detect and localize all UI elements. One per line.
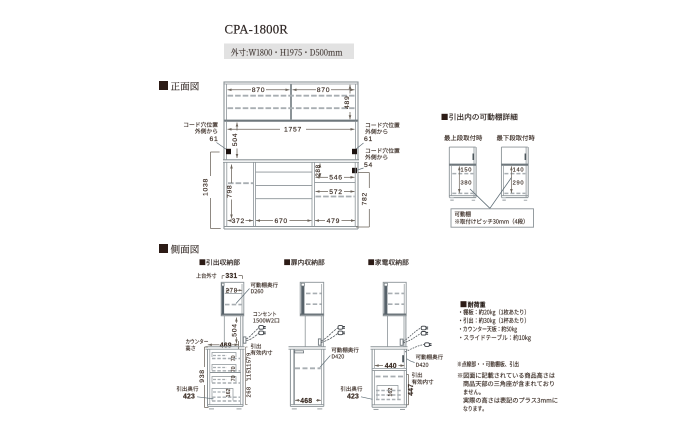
svg-text:469: 469: [220, 342, 232, 349]
svg-text:54: 54: [364, 162, 373, 169]
svg-text:115: 115: [246, 370, 252, 381]
svg-text:423: 423: [347, 393, 359, 400]
svg-text:479: 479: [327, 218, 340, 225]
svg-text:61: 61: [364, 136, 373, 143]
svg-text:70: 70: [231, 375, 237, 381]
svg-text:440: 440: [385, 363, 397, 370]
svg-text:380: 380: [461, 181, 473, 187]
svg-text:504: 504: [231, 323, 238, 336]
svg-text:288: 288: [315, 164, 322, 176]
svg-text:870: 870: [252, 87, 265, 94]
svg-text:504: 504: [232, 133, 239, 146]
svg-text:938: 938: [199, 369, 206, 382]
svg-text:140: 140: [513, 168, 525, 174]
svg-text:290: 290: [513, 181, 525, 187]
svg-text:546: 546: [329, 175, 342, 182]
svg-text:70: 70: [231, 355, 237, 361]
svg-text:870: 870: [317, 87, 330, 94]
svg-text:70: 70: [231, 366, 237, 372]
svg-text:150: 150: [461, 168, 473, 174]
svg-text:468: 468: [300, 398, 312, 405]
svg-text:423: 423: [183, 393, 195, 400]
svg-text:115: 115: [246, 359, 252, 370]
svg-text:782: 782: [362, 192, 369, 205]
svg-text:1757: 1757: [284, 127, 302, 134]
svg-text:268: 268: [246, 386, 252, 397]
svg-text:61: 61: [210, 136, 219, 143]
svg-text:670: 670: [274, 218, 287, 225]
svg-text:372: 372: [232, 218, 245, 225]
svg-text:798: 798: [227, 185, 234, 198]
svg-text:CPA-1800R: CPA-1800R: [225, 23, 289, 37]
svg-text:572: 572: [329, 189, 342, 196]
svg-text:447: 447: [408, 384, 415, 396]
svg-text:331: 331: [225, 273, 237, 280]
svg-text:162: 162: [226, 388, 232, 397]
svg-text:162: 162: [388, 388, 394, 397]
svg-text:489: 489: [344, 95, 351, 108]
svg-text:1038: 1038: [202, 178, 209, 196]
svg-text:79: 79: [246, 352, 252, 359]
